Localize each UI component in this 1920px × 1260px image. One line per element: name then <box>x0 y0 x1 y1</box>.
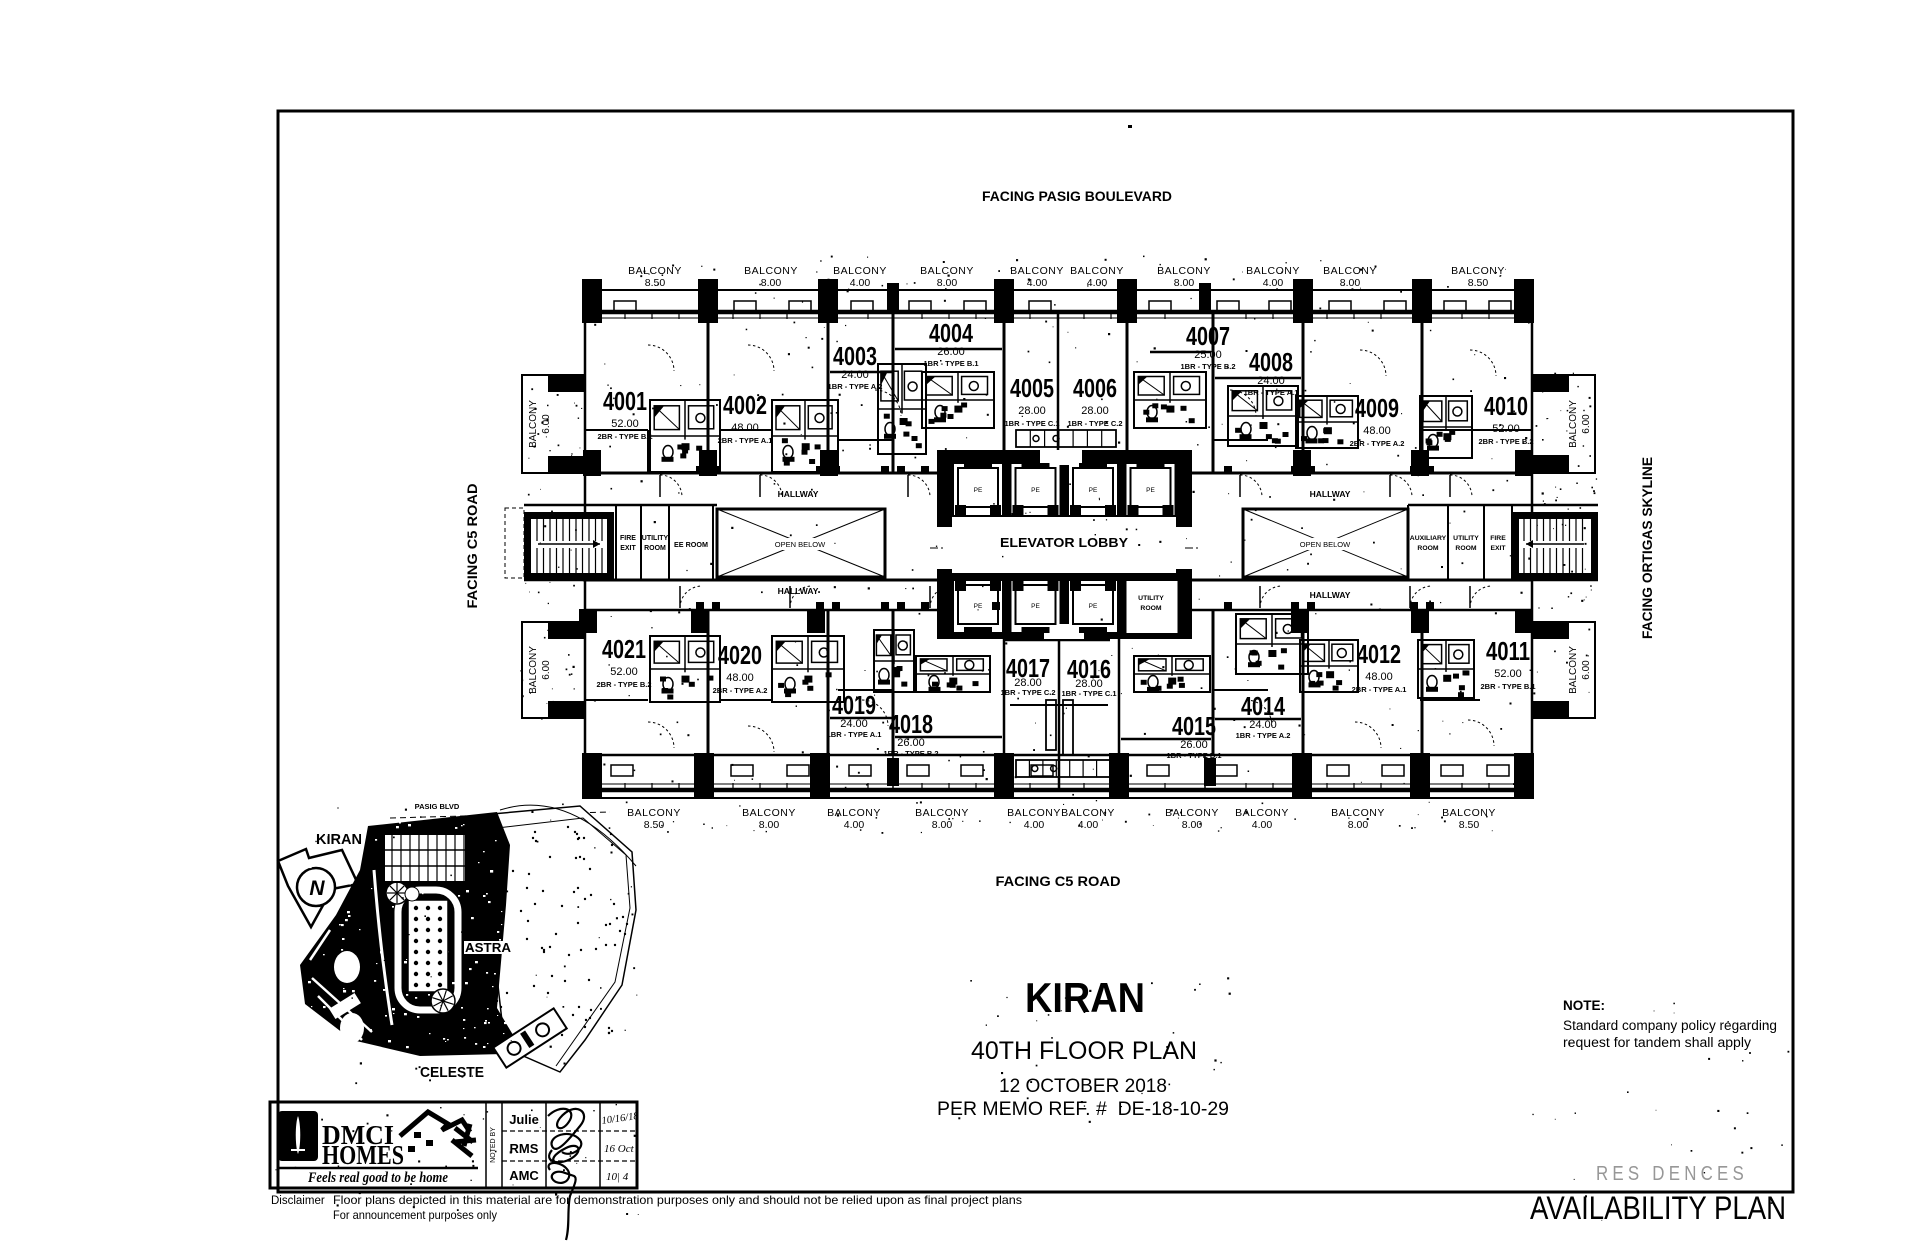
svg-text:1BR - TYPE A.2: 1BR - TYPE A.2 <box>828 382 883 391</box>
svg-text:BALCONY: BALCONY <box>627 807 681 819</box>
svg-text:FACING PASIG BOULEVARD: FACING PASIG BOULEVARD <box>982 189 1172 204</box>
svg-text:HALLWAY: HALLWAY <box>1310 489 1351 499</box>
svg-text:8.00: 8.00 <box>932 819 953 831</box>
svg-text:BALCONY: BALCONY <box>1442 807 1496 819</box>
svg-text:4006: 4006 <box>1073 373 1117 403</box>
svg-text:Julie: Julie <box>509 1112 539 1127</box>
svg-text:PE: PE <box>1089 603 1098 610</box>
svg-text:1BR - TYPE C.1: 1BR - TYPE C.1 <box>1061 689 1116 698</box>
svg-text:BALCONY: BALCONY <box>1323 265 1377 277</box>
svg-text:BALCONY: BALCONY <box>1331 807 1385 819</box>
svg-text:8.00: 8.00 <box>761 277 782 289</box>
svg-text:26.00: 26.00 <box>1180 739 1208 751</box>
svg-text:PASIG BLVD: PASIG BLVD <box>415 802 460 811</box>
svg-text:8.00: 8.00 <box>1174 277 1195 289</box>
svg-text:1BR - TYPE A.2: 1BR - TYPE A.2 <box>1236 731 1291 740</box>
svg-text:48.00: 48.00 <box>726 672 754 684</box>
svg-text:AVAILABILITY PLAN: AVAILABILITY PLAN <box>1530 1190 1786 1226</box>
svg-text:8.00: 8.00 <box>1340 277 1361 289</box>
svg-text:PE: PE <box>1146 487 1155 494</box>
svg-text:4.00: 4.00 <box>1024 819 1045 831</box>
svg-text:BALCONY: BALCONY <box>1451 265 1505 277</box>
svg-text:BALCONY: BALCONY <box>1061 807 1115 819</box>
svg-text:NOTED BY: NOTED BY <box>490 1127 497 1163</box>
svg-text:ROOM: ROOM <box>1140 605 1161 612</box>
svg-text:FACING C5 ROAD: FACING C5 ROAD <box>465 483 480 608</box>
svg-text:6.00: 6.00 <box>1581 414 1592 434</box>
svg-text:40TH FLOOR PLAN: 40TH FLOOR PLAN <box>971 1037 1197 1065</box>
svg-text:FIRE: FIRE <box>1490 535 1506 542</box>
svg-text:16 Oct: 16 Oct <box>604 1143 635 1155</box>
svg-text:KIRAN: KIRAN <box>316 831 362 848</box>
svg-text:6.00: 6.00 <box>541 660 552 680</box>
svg-text:ROOM: ROOM <box>1455 545 1476 552</box>
svg-text:52.00: 52.00 <box>611 418 639 430</box>
svg-text:4002: 4002 <box>723 390 767 420</box>
svg-text:48.00: 48.00 <box>1363 425 1391 437</box>
svg-text:4.00: 4.00 <box>850 277 871 289</box>
svg-text:4005: 4005 <box>1010 373 1054 403</box>
svg-text:BALCONY: BALCONY <box>1568 400 1579 448</box>
svg-text:8.00: 8.00 <box>937 277 958 289</box>
svg-text:4019: 4019 <box>832 690 876 720</box>
svg-text:4021: 4021 <box>602 634 646 664</box>
svg-text:BALCONY: BALCONY <box>1070 265 1124 277</box>
svg-text:Feels real good to be home: Feels real good to be home <box>307 1170 448 1186</box>
svg-text:FIRE: FIRE <box>620 535 636 542</box>
svg-text:4020: 4020 <box>718 640 762 670</box>
svg-text:4001: 4001 <box>603 386 647 416</box>
svg-text:FACING ORTIGAS SKYLINE: FACING ORTIGAS SKYLINE <box>1640 457 1655 639</box>
svg-text:4003: 4003 <box>833 341 877 371</box>
svg-text:2BR - TYPE B.1: 2BR - TYPE B.1 <box>597 432 652 441</box>
svg-text:BALCONY: BALCONY <box>1157 265 1211 277</box>
svg-text:1BR - TYPE A.1: 1BR - TYPE A.1 <box>827 730 882 739</box>
svg-text:HALLWAY: HALLWAY <box>778 586 819 596</box>
svg-text:6.00: 6.00 <box>1581 660 1592 680</box>
svg-text:BALCONY: BALCONY <box>833 265 887 277</box>
svg-text:BALCONY: BALCONY <box>1568 646 1579 694</box>
svg-text:4.00: 4.00 <box>1252 819 1273 831</box>
svg-text:UTILITY: UTILITY <box>642 535 669 542</box>
svg-text:4.00: 4.00 <box>1263 277 1284 289</box>
svg-text:PE: PE <box>974 603 983 610</box>
svg-text:RES DENCES: RES DENCES <box>1596 1163 1748 1185</box>
svg-text:UTILITY: UTILITY <box>1138 595 1164 602</box>
svg-text:1BR - TYPE C.1: 1BR - TYPE C.1 <box>1004 419 1059 428</box>
svg-text:4.00: 4.00 <box>844 819 865 831</box>
svg-text:BALCONY: BALCONY <box>628 265 682 277</box>
svg-text:8.50: 8.50 <box>645 277 666 289</box>
svg-text:Floor plans depicted in this m: Floor plans depicted in this material ar… <box>333 1193 1022 1207</box>
svg-text:EXIT: EXIT <box>1490 545 1506 552</box>
svg-text:RMS: RMS <box>510 1141 539 1156</box>
svg-text:ASTRA: ASTRA <box>465 940 512 955</box>
svg-text:8.00: 8.00 <box>1348 819 1369 831</box>
svg-text:BALCONY: BALCONY <box>528 400 539 448</box>
svg-text:EXIT: EXIT <box>620 545 636 552</box>
svg-text:10| 4: 10| 4 <box>606 1171 629 1183</box>
svg-text:ROOM: ROOM <box>1417 545 1438 552</box>
svg-text:NOTE:: NOTE: <box>1563 998 1605 1013</box>
svg-text:OPEN BELOW: OPEN BELOW <box>775 540 826 549</box>
svg-text:PER MEMO REF. # DE-18-10-29: PER MEMO REF. # DE-18-10-29 <box>937 1098 1229 1120</box>
svg-text:EE ROOM: EE ROOM <box>674 540 708 549</box>
svg-text:8.50: 8.50 <box>1459 819 1480 831</box>
svg-text:28.00: 28.00 <box>1018 405 1046 417</box>
svg-text:2BR - TYPE B.2: 2BR - TYPE B.2 <box>596 680 651 689</box>
svg-text:BALCONY: BALCONY <box>744 265 798 277</box>
svg-text:4.00: 4.00 <box>1087 277 1108 289</box>
svg-text:BALCONY: BALCONY <box>1010 265 1064 277</box>
svg-text:HOMES: HOMES <box>322 1140 404 1170</box>
svg-text:OPEN BELOW: OPEN BELOW <box>1300 540 1351 549</box>
svg-text:2BR - TYPE A.1: 2BR - TYPE A.1 <box>1352 685 1407 694</box>
svg-text:1BR - TYPE B.1: 1BR - TYPE B.1 <box>923 359 978 368</box>
svg-text:8.00: 8.00 <box>759 819 780 831</box>
svg-text:1BR - TYPE A.1: 1BR - TYPE A.1 <box>1244 388 1299 397</box>
svg-text:4015: 4015 <box>1172 711 1216 741</box>
svg-text:PE: PE <box>1031 487 1040 494</box>
svg-text:AUXILIARY: AUXILIARY <box>1410 535 1447 542</box>
svg-text:Disclaimer: Disclaimer <box>271 1195 325 1207</box>
svg-text:24.00: 24.00 <box>1249 719 1277 731</box>
svg-text:4011: 4011 <box>1486 636 1530 666</box>
svg-text:4.00: 4.00 <box>1078 819 1099 831</box>
svg-text:1BR - TYPE B.1: 1BR - TYPE B.1 <box>1166 751 1221 760</box>
svg-text:BALCONY: BALCONY <box>920 265 974 277</box>
svg-text:BALCONY: BALCONY <box>1246 265 1300 277</box>
svg-text:4012: 4012 <box>1357 639 1401 669</box>
svg-text:BALCONY: BALCONY <box>1007 807 1061 819</box>
svg-text:48.00: 48.00 <box>731 422 759 434</box>
svg-text:48.00: 48.00 <box>1365 671 1393 683</box>
svg-text:ELEVATOR LOBBY: ELEVATOR LOBBY <box>1000 535 1128 550</box>
svg-text:BALCONY: BALCONY <box>528 646 539 694</box>
svg-text:4008: 4008 <box>1249 347 1293 377</box>
svg-text:2BR - TYPE A.1: 2BR - TYPE A.1 <box>718 436 773 445</box>
svg-text:PE: PE <box>974 487 983 494</box>
svg-text:4014: 4014 <box>1241 691 1285 721</box>
svg-text:4018: 4018 <box>889 709 933 739</box>
svg-text:ROOM: ROOM <box>644 545 666 552</box>
svg-text:Standard company policy regard: Standard company policy regarding <box>1563 1018 1777 1033</box>
svg-text:8.50: 8.50 <box>1468 277 1489 289</box>
svg-text:request for tandem shall apply: request for tandem shall apply <box>1563 1035 1751 1050</box>
svg-text:BALCONY: BALCONY <box>915 807 969 819</box>
svg-text:BALCONY: BALCONY <box>742 807 796 819</box>
svg-text:For announcement purposes only: For announcement purposes only <box>333 1208 497 1222</box>
svg-text:UTILITY: UTILITY <box>1453 535 1479 542</box>
svg-text:BALCONY: BALCONY <box>1235 807 1289 819</box>
svg-text:10/16/18: 10/16/18 <box>601 1111 640 1127</box>
svg-text:BALCONY: BALCONY <box>1165 807 1219 819</box>
svg-text:26.00: 26.00 <box>897 737 925 749</box>
svg-text:28.00: 28.00 <box>1081 405 1109 417</box>
svg-text:KIRAN: KIRAN <box>1025 974 1145 1021</box>
svg-text:HALLWAY: HALLWAY <box>1310 590 1351 600</box>
svg-text:4004: 4004 <box>929 318 973 348</box>
svg-text:2BR - TYPE B.1: 2BR - TYPE B.1 <box>1480 682 1535 691</box>
svg-text:24.00: 24.00 <box>840 718 868 730</box>
svg-text:1BR - TYPE C.2: 1BR - TYPE C.2 <box>1067 419 1122 428</box>
svg-text:4010: 4010 <box>1484 391 1528 421</box>
svg-text:1BR - TYPE C.2: 1BR - TYPE C.2 <box>1000 688 1055 697</box>
svg-text:4009: 4009 <box>1355 393 1399 423</box>
svg-text:4007: 4007 <box>1186 321 1230 351</box>
svg-text:FACING C5 ROAD: FACING C5 ROAD <box>996 874 1121 889</box>
svg-text:AMC: AMC <box>509 1168 539 1183</box>
svg-text:1BR - TYPE B.2: 1BR - TYPE B.2 <box>883 749 938 758</box>
svg-text:PE: PE <box>1031 603 1040 610</box>
svg-text:52.00: 52.00 <box>610 666 638 678</box>
svg-text:6.00: 6.00 <box>541 414 552 434</box>
svg-text:8.00: 8.00 <box>1182 819 1203 831</box>
svg-text:BALCONY: BALCONY <box>827 807 881 819</box>
svg-text:52.00: 52.00 <box>1494 668 1522 680</box>
svg-text:CELESTE: CELESTE <box>420 1064 484 1081</box>
svg-text:PE: PE <box>1089 487 1098 494</box>
